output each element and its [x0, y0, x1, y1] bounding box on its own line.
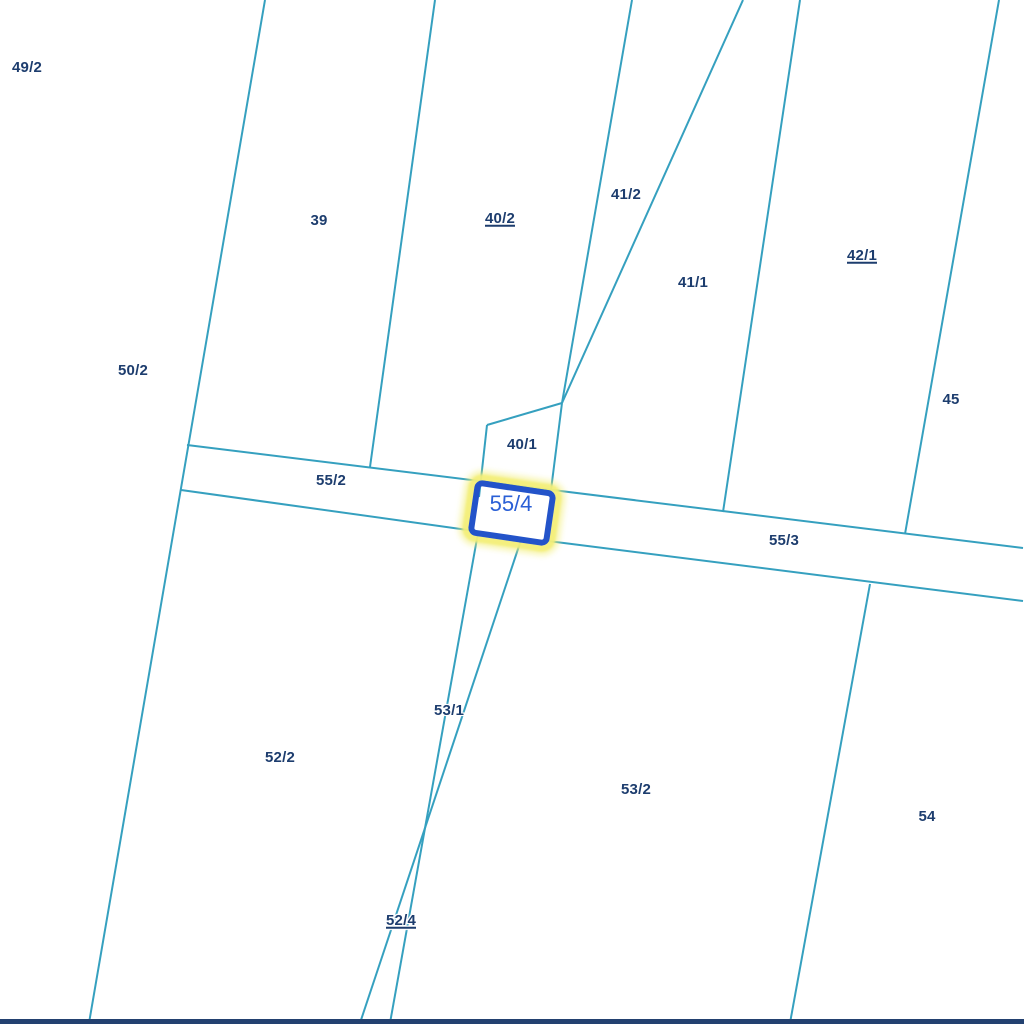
parcel-label-55-3[interactable]: 55/3	[769, 533, 799, 550]
parcel-boundary-line	[181, 490, 475, 531]
parcel-label-39[interactable]: 39	[310, 213, 327, 230]
parcel-label-55-2[interactable]: 55/2	[316, 473, 346, 490]
parcel-label-40-2[interactable]: 40/2	[485, 211, 515, 228]
parcel-boundary-line	[723, 0, 800, 512]
parcel-boundary-line	[89, 0, 265, 1023]
parcel-boundary-line	[548, 541, 1023, 601]
parcel-label-54[interactable]: 54	[918, 809, 935, 826]
parcel-boundary-line	[370, 0, 435, 467]
parcel-label-42-1[interactable]: 42/1	[847, 248, 877, 265]
parcel-boundary-line	[187, 445, 1023, 548]
parcel-label-52-2[interactable]: 52/2	[265, 750, 295, 767]
parcel-boundary-line	[790, 584, 870, 1023]
parcel-label-52-4[interactable]: 52/4	[386, 913, 416, 930]
parcel-label-53-1[interactable]: 53/1	[434, 703, 464, 720]
parcel-label-53-2[interactable]: 53/2	[621, 782, 651, 799]
parcel-label-49-2[interactable]: 49/2	[12, 60, 42, 77]
parcel-boundary-line	[360, 540, 521, 1023]
parcel-label-50-2[interactable]: 50/2	[118, 363, 148, 380]
parcel-label-40-1[interactable]: 40/1	[507, 437, 537, 454]
parcel-label-45[interactable]: 45	[942, 392, 959, 409]
parcel-boundary-line	[390, 533, 478, 1023]
cadastral-map-canvas[interactable]: 49/23940/241/241/142/14550/240/155/255/3…	[0, 0, 1024, 1024]
parcel-boundary-line	[487, 403, 562, 425]
parcel-boundary-line	[551, 403, 562, 490]
parcel-label-41-1[interactable]: 41/1	[678, 275, 708, 292]
parcel-boundary-line	[905, 0, 999, 534]
parcel-label-41-2[interactable]: 41/2	[611, 187, 641, 204]
selected-parcel-label[interactable]: 55/4	[490, 491, 533, 517]
parcel-boundary-line	[562, 0, 743, 403]
map-bottom-edge-bar	[0, 1019, 1024, 1024]
